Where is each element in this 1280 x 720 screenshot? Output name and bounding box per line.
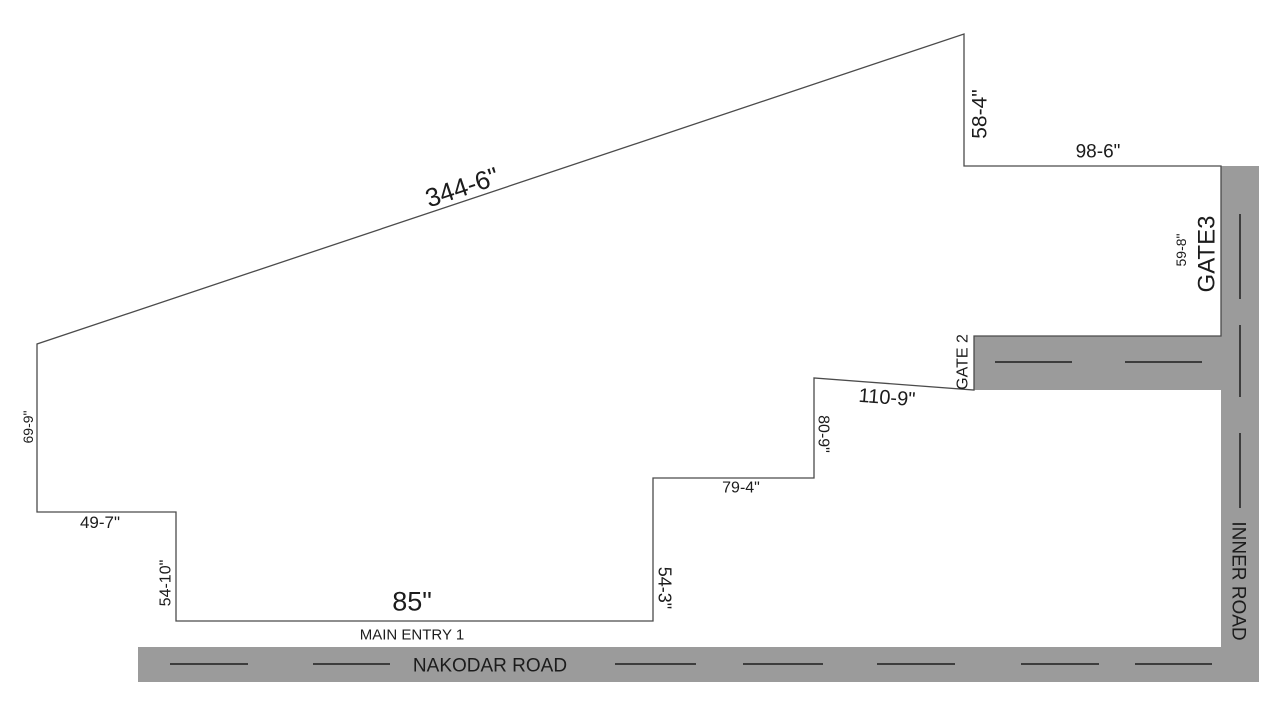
- dim-label-59-8: 59-8": [1173, 233, 1189, 266]
- dim-label-98-6: 98-6": [1076, 142, 1121, 163]
- dim-label-69-9: 69-9": [20, 410, 36, 443]
- inner-road-label: INNER ROAD: [1227, 521, 1248, 640]
- dim-label-110-9: 110-9": [858, 385, 916, 411]
- dim-label-80-9: 80-9": [814, 415, 831, 453]
- dim-label-85: 85": [392, 586, 432, 616]
- dim-label-79-4: 79-4": [722, 480, 760, 497]
- dim-label-49-7: 49-7": [80, 513, 120, 532]
- main-entry1-label: MAIN ENTRY 1: [360, 626, 464, 643]
- dim-label-58-4: 58-4": [968, 89, 991, 139]
- gate2-label: GATE 2: [955, 334, 972, 390]
- gate3-label: GATE3: [1193, 216, 1220, 293]
- dim-label-54-10: 54-10": [158, 560, 175, 607]
- site-plan-svg: 344-6"58-4"98-6"59-8"GATE3GATE 2110-9"80…: [0, 0, 1280, 720]
- site-plan-canvas: 344-6"58-4"98-6"59-8"GATE3GATE 2110-9"80…: [0, 0, 1280, 720]
- nakodar-road-label: NAKODAR ROAD: [413, 656, 567, 677]
- dim-label-54-3: 54-3": [655, 567, 675, 609]
